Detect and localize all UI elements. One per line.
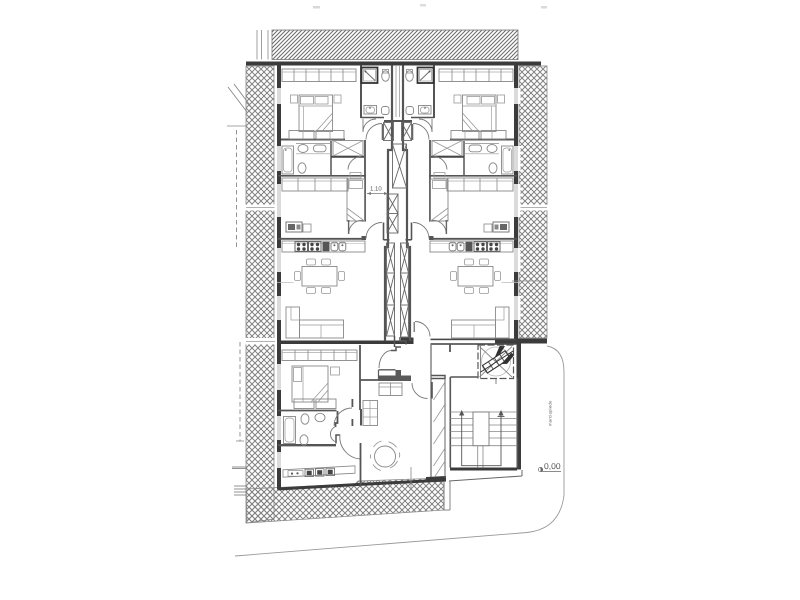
svg-text:1.10: 1.10 xyxy=(370,186,382,193)
svg-text:marciapiede: marciapiede xyxy=(548,400,553,426)
svg-text:0,00: 0,00 xyxy=(544,461,561,471)
